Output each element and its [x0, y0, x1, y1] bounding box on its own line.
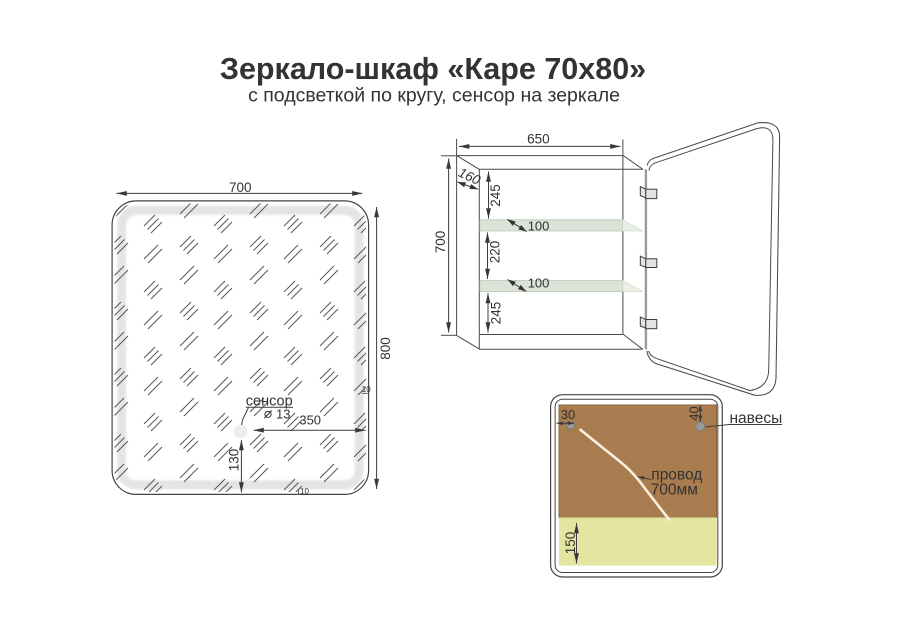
svg-text:650: 650 [527, 132, 550, 147]
svg-text:150: 150 [563, 532, 578, 555]
svg-text:13: 13 [276, 406, 290, 421]
svg-text:с подсветкой по кругу, сенсор: с подсветкой по кругу, сенсор на зеркале [248, 85, 620, 107]
svg-text:700: 700 [229, 180, 252, 195]
svg-text:10: 10 [300, 487, 309, 496]
svg-text:Зеркало-шкаф «Каре 70х80»: Зеркало-шкаф «Каре 70х80» [220, 52, 646, 86]
svg-text:130: 130 [226, 449, 241, 472]
svg-text:350: 350 [299, 413, 321, 428]
svg-text:220: 220 [488, 241, 503, 264]
svg-text:100: 100 [528, 219, 550, 234]
svg-text:800: 800 [378, 337, 393, 360]
svg-text:30: 30 [561, 407, 575, 422]
svg-text:100: 100 [528, 275, 550, 290]
svg-text:10: 10 [362, 385, 371, 394]
svg-text:40: 40 [686, 406, 701, 420]
svg-text:700мм: 700мм [651, 482, 698, 499]
svg-text:700: 700 [433, 231, 448, 254]
svg-text:245: 245 [488, 184, 503, 207]
svg-text:245: 245 [489, 302, 504, 325]
